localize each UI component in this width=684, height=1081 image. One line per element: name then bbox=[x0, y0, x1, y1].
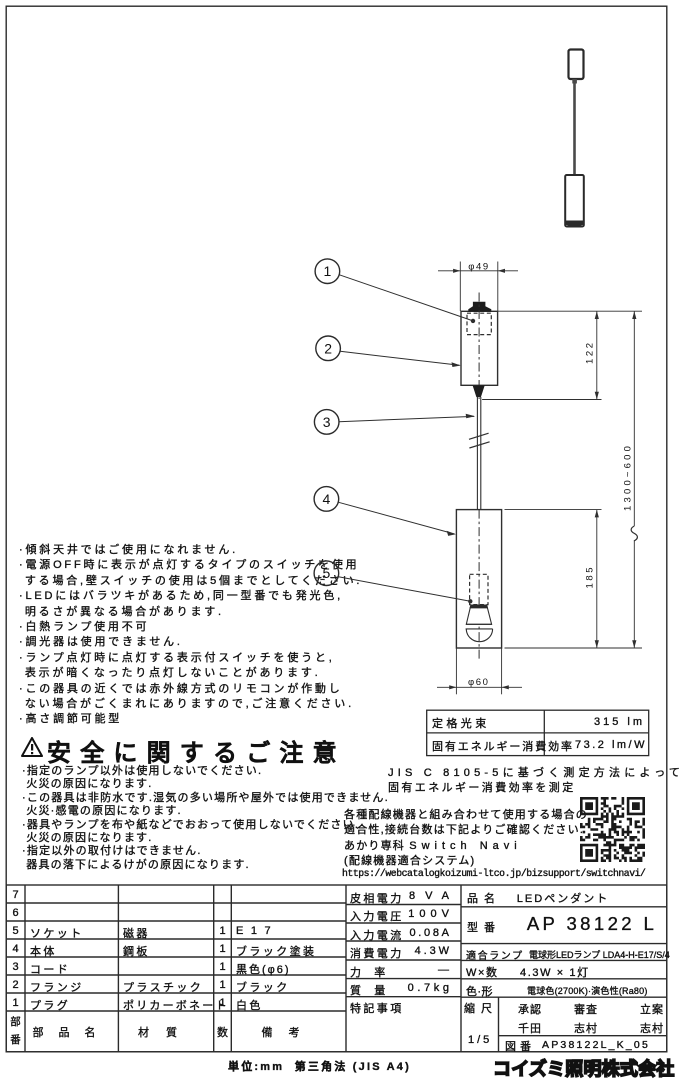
svg-text:3: 3 bbox=[323, 414, 331, 430]
svg-text:φ49: φ49 bbox=[468, 261, 490, 272]
svg-text:1: 1 bbox=[324, 263, 332, 279]
svg-text:122: 122 bbox=[585, 340, 596, 364]
svg-text:2: 2 bbox=[324, 340, 332, 356]
svg-text:185: 185 bbox=[585, 565, 596, 589]
svg-text:φ60: φ60 bbox=[468, 677, 490, 688]
svg-text:1300~600: 1300~600 bbox=[623, 443, 634, 511]
svg-text:4: 4 bbox=[323, 491, 331, 507]
svg-text:5: 5 bbox=[323, 565, 331, 581]
